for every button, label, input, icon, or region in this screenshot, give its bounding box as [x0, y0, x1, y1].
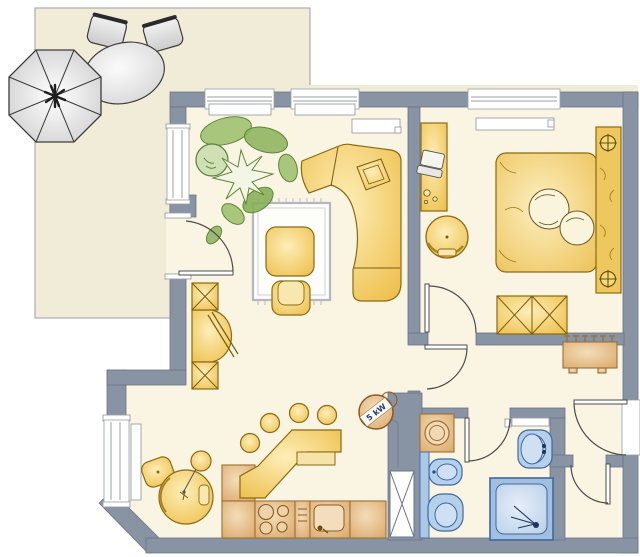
- dresser: [497, 296, 567, 334]
- wall-bath-top-right: [510, 408, 565, 418]
- toilet: [428, 494, 463, 531]
- window-sill: [295, 104, 355, 115]
- shower: [490, 478, 553, 540]
- floor-plan: 5 kW: [0, 0, 640, 557]
- towel-radiator: [420, 452, 429, 538]
- bar-stool: [241, 434, 260, 453]
- wall-stub: [408, 333, 428, 345]
- opening-entrance: [622, 400, 640, 455]
- coffee-table: [266, 227, 314, 276]
- window-sill: [476, 118, 554, 130]
- window-sill: [209, 104, 271, 115]
- kitchen-sink: [310, 501, 350, 538]
- bar-stool: [318, 406, 337, 425]
- dishwasher: [295, 501, 310, 538]
- installation-shaft: [390, 471, 414, 537]
- desk-chair: [426, 216, 468, 258]
- wall-living-bedroom: [408, 107, 420, 333]
- floor-plan-drawing: 5 kW: [0, 0, 640, 557]
- bidet: [429, 459, 462, 485]
- wall-shelf: [352, 119, 401, 133]
- window-living-2: [291, 89, 359, 115]
- bed: [496, 153, 597, 272]
- bar-stool: [261, 414, 280, 433]
- wall-step: [107, 370, 186, 385]
- umbrella-icon: [9, 50, 101, 142]
- headboard-shelf: [596, 127, 621, 293]
- pillow: [560, 211, 594, 245]
- opening-terrace-door: [166, 215, 190, 279]
- mirror: [512, 418, 549, 426]
- bar-stool: [290, 404, 309, 423]
- armchair: [272, 281, 310, 315]
- counter-cabinet: [222, 501, 255, 538]
- desk: [416, 123, 447, 211]
- radiator: [131, 424, 141, 500]
- window-terrace: [166, 124, 190, 204]
- window-kitchen: [103, 415, 141, 507]
- shower-drain: [533, 522, 539, 528]
- washing-machine: [420, 414, 454, 452]
- counter-cabinet: [350, 501, 386, 538]
- cooktop: [255, 501, 295, 538]
- wall-storage-left: [550, 455, 573, 467]
- window-living-1: [205, 89, 274, 115]
- wall-right: [623, 92, 638, 553]
- coat-rack: [563, 336, 617, 373]
- window-handle: [548, 120, 554, 127]
